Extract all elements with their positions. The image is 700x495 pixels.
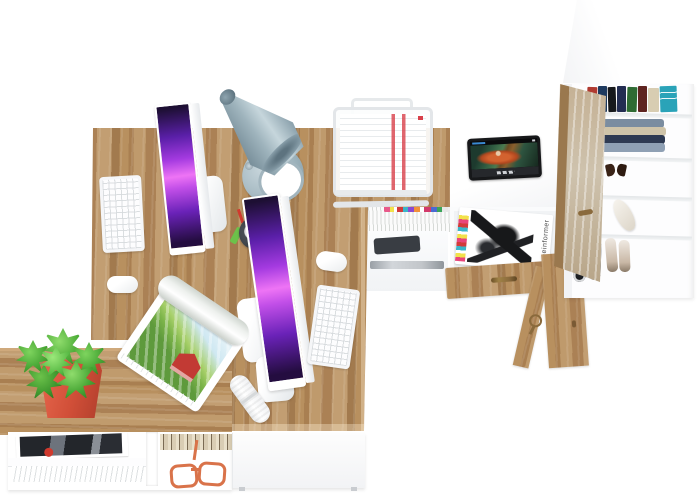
magazine-cover [20,433,123,457]
glasses-bridge [191,468,200,471]
book [617,86,626,112]
under-desk-unit [373,235,420,254]
remote-band [240,391,258,405]
status-dot [532,139,535,141]
wardrobe-door-handle [578,209,594,217]
keyboard-keys [310,288,357,366]
desk-side-edge [361,207,365,431]
tablet-screen [470,138,539,177]
reading-glasses [166,456,228,488]
red-house [169,347,205,383]
book [648,88,659,112]
paper-red-mark [418,116,423,120]
book [638,86,647,112]
scene-canvas: gameinformer [0,0,700,495]
sneaker-pair-light [606,238,632,274]
under-desk-cavity [366,231,448,291]
wardrobe-top-panel [560,0,700,88]
cabinet-foot [351,487,357,491]
keyboard-keys [102,178,142,250]
sneaker [618,240,630,272]
cabinet-divider [146,432,158,486]
magazine-cover-art [467,210,535,267]
document-tray [333,98,429,210]
tray-leg [335,190,427,195]
drawer-handle [491,276,517,283]
storage-cabinet-center [232,433,365,488]
storage-cabinet-left [8,432,232,490]
book [627,87,638,112]
dark-accessory [606,162,628,178]
metal-rail [370,261,444,269]
plant [10,322,120,434]
playback-controls [496,171,514,175]
book [660,86,678,113]
door-keyhole [572,320,576,327]
key-stem [529,325,536,335]
tray-leg [333,200,429,208]
magazine-stack [16,432,129,460]
accessory-part [605,163,616,177]
tablet [467,135,542,181]
book [608,87,617,112]
mouse-1 [107,276,138,293]
sneaker [605,238,619,273]
accessory-part [616,163,627,177]
glasses-lens [197,461,227,487]
fanned-papers [12,466,144,482]
video-frame [470,142,538,169]
cabinet-foot [239,487,245,491]
tray-frame [333,107,433,197]
tray-papers [340,114,426,190]
keyboard-1 [99,175,145,253]
glasses-lens [169,463,199,489]
